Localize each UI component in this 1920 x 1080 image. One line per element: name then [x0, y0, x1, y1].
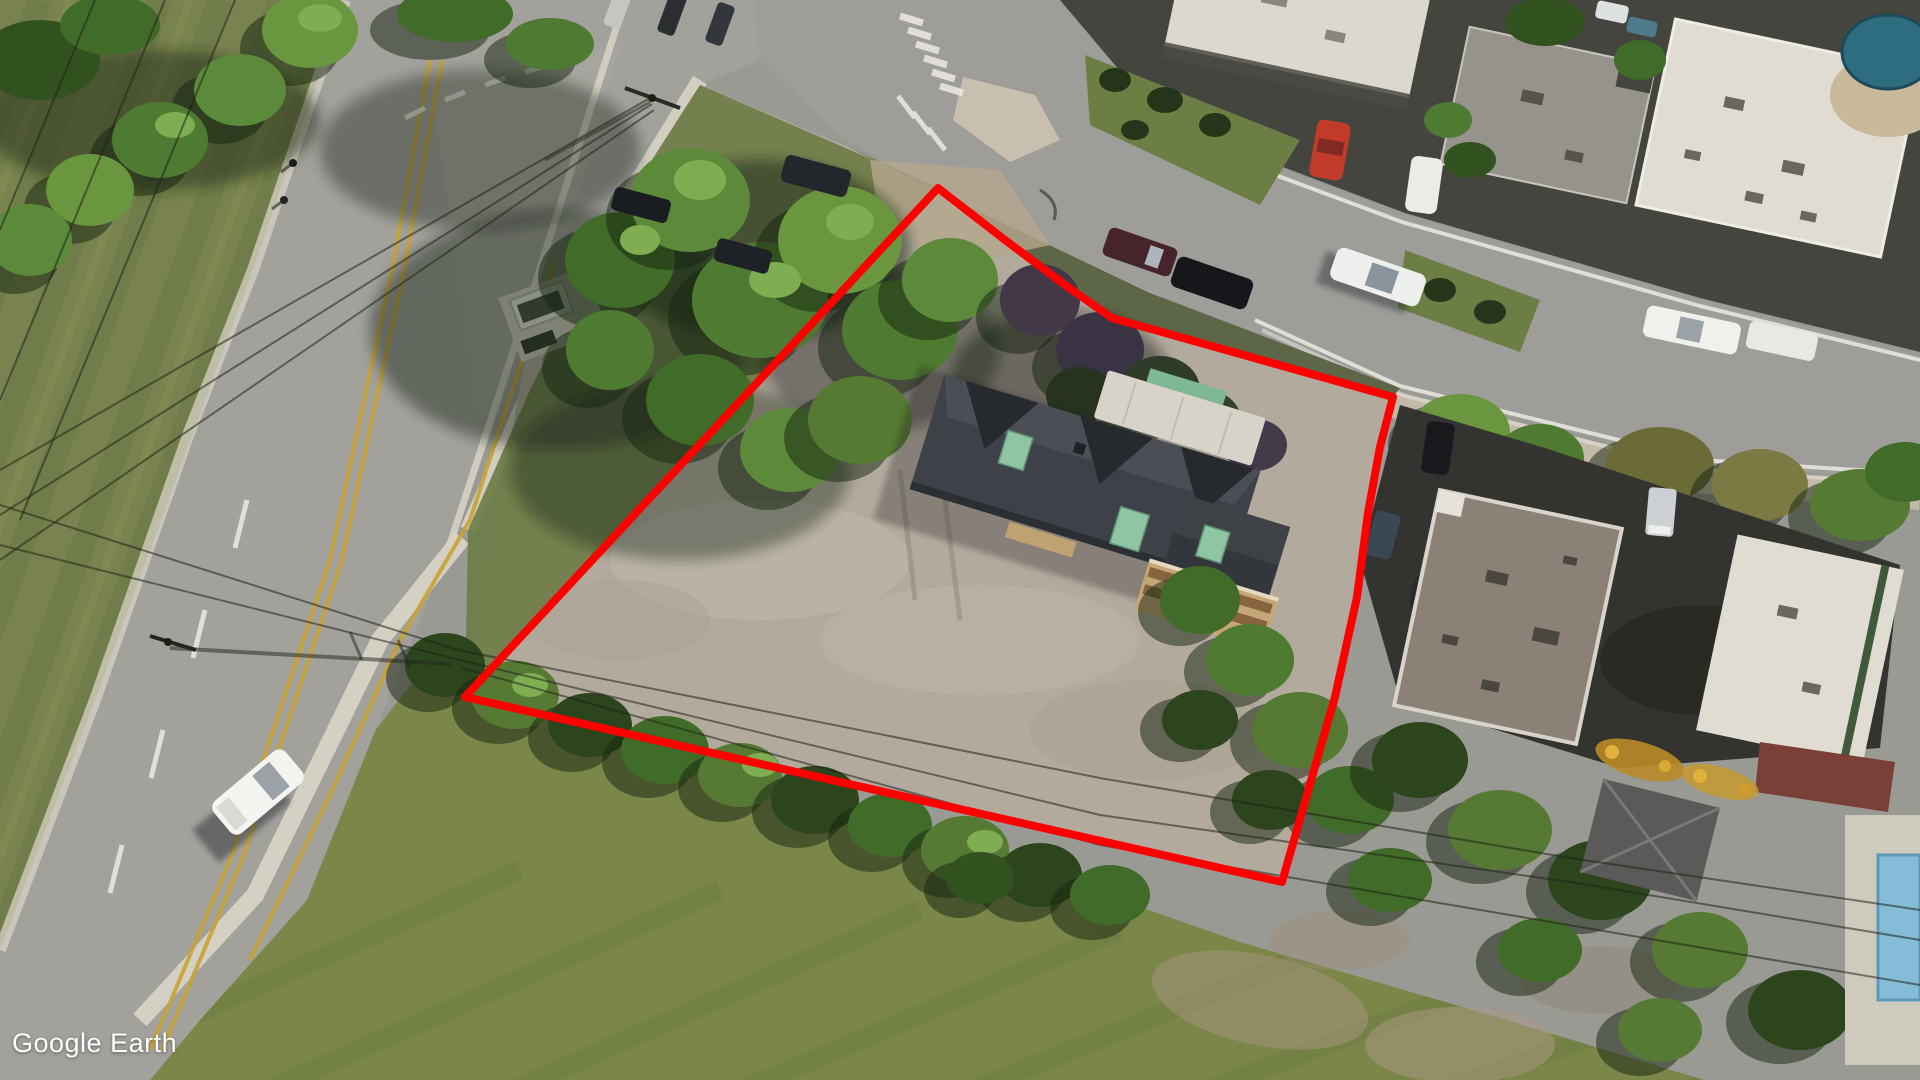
- brick-wall-band: [1755, 742, 1895, 812]
- watermark-text: Google Earth: [12, 1028, 177, 1058]
- van-gray-backyard: [1645, 487, 1677, 537]
- backyard-pool-area: [1845, 815, 1920, 1065]
- swimming-pool-north: [1842, 15, 1920, 89]
- google-earth-canvas[interactable]: Google Earth: [0, 0, 1920, 1080]
- google-earth-watermark: Google Earth: [12, 1028, 177, 1059]
- aerial-imagery: [0, 0, 1920, 1080]
